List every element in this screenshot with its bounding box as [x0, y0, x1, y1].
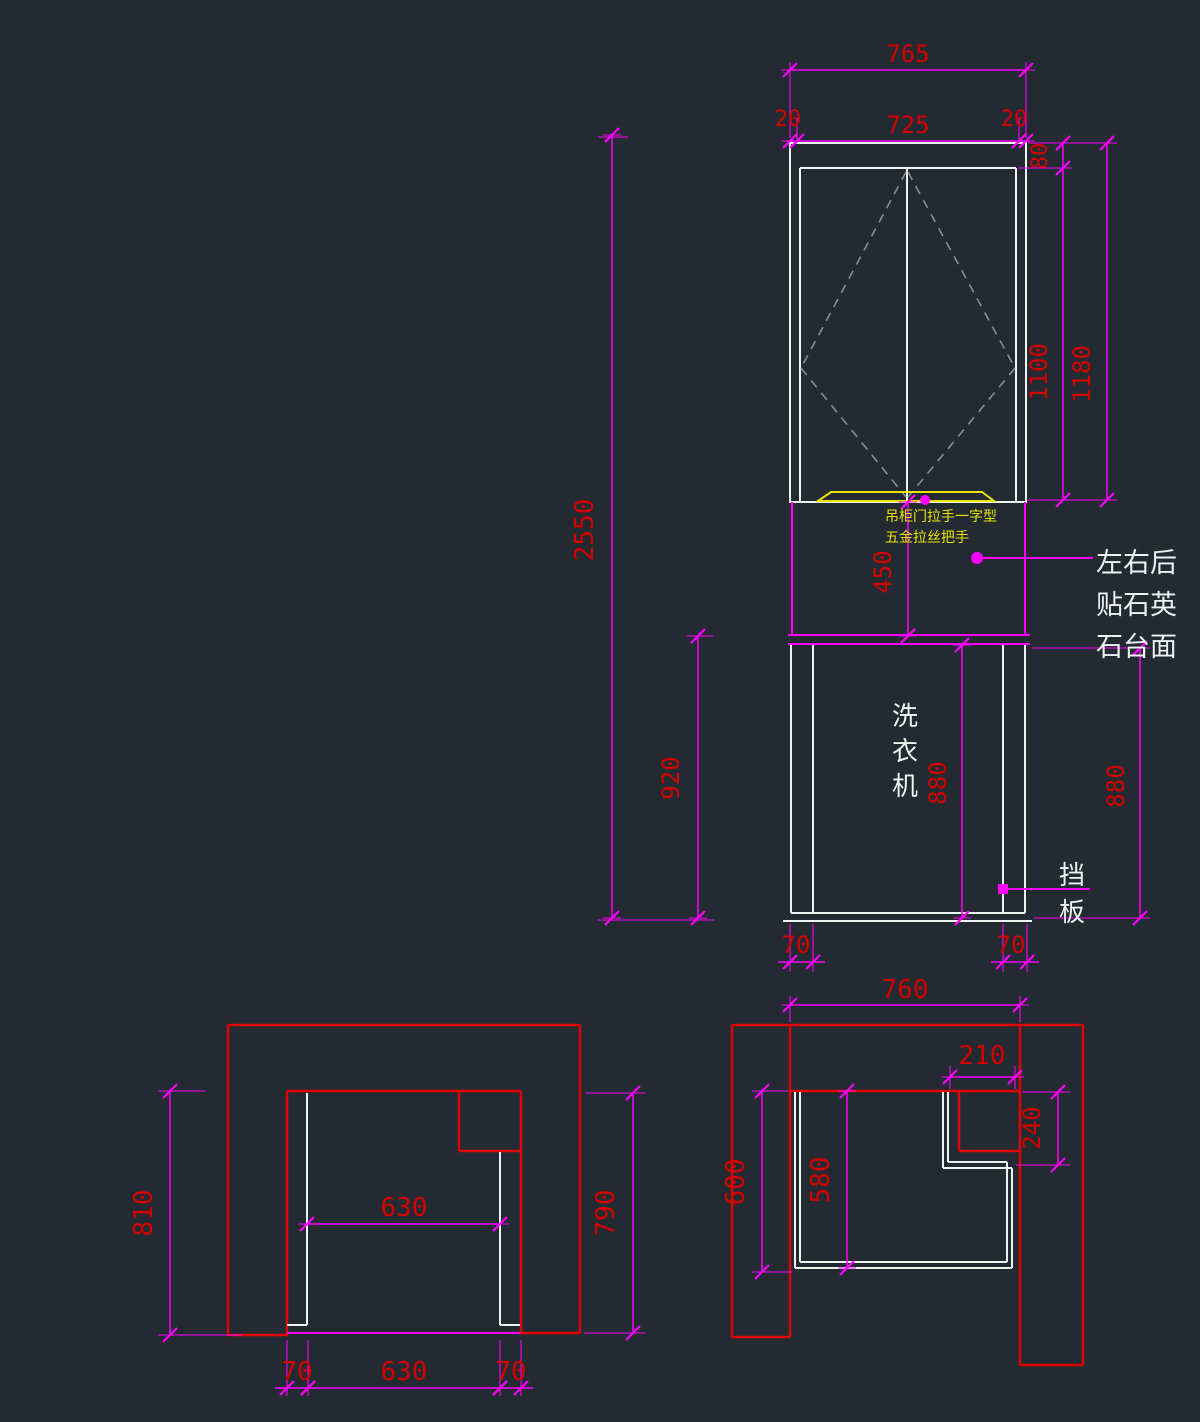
dim-splash-height: 450: [869, 550, 897, 593]
dim-upper-height: 1180: [1068, 345, 1096, 403]
counter-note-line1: 左右后: [1096, 548, 1177, 578]
cad-viewport[interactable]: 765 20 725 20 80 1100 1180 2550 920 450 …: [0, 0, 1200, 1422]
dim-plan-right-depth-inner: 580: [806, 1157, 836, 1204]
washing-machine-label-1: 洗: [892, 701, 918, 731]
dim-plan-left-foot-right: 70: [495, 1357, 526, 1387]
dim-base-height: 920: [657, 756, 685, 799]
leader-dot: [920, 495, 930, 505]
dim-foot-left: 70: [782, 931, 811, 959]
dim-door-height: 1100: [1025, 343, 1053, 401]
handle-note-line2: 五金拉丝把手: [885, 529, 969, 545]
baffle-label-1: 挡: [1059, 860, 1085, 890]
leader-dot: [971, 552, 983, 564]
dim-top-rail: 80: [1028, 143, 1053, 170]
dim-niche-height: 880: [924, 761, 952, 804]
dim-plan-left-height-right: 790: [591, 1190, 621, 1237]
dim-plan-left-inner-width: 630: [381, 1193, 428, 1223]
dim-foot-right: 70: [997, 931, 1026, 959]
dim-side-right: 20: [1001, 107, 1028, 132]
dim-overall-width: 765: [886, 40, 929, 68]
dim-plan-left-bottom-width: 630: [381, 1357, 428, 1387]
baffle-label-2: 板: [1059, 897, 1085, 927]
dim-plan-right-notch-depth: 240: [1018, 1106, 1046, 1149]
dim-plan-left-foot-left: 70: [281, 1357, 312, 1387]
dim-plan-left-height-left: 810: [129, 1190, 159, 1237]
washing-machine-label-3: 机: [892, 771, 918, 801]
dim-inner-width: 725: [886, 111, 929, 139]
cad-drawing[interactable]: 765 20 725 20 80 1100 1180 2550 920 450 …: [0, 0, 1200, 1422]
handle-note-line1: 吊柜门拉手一字型: [885, 508, 997, 524]
counter-note-line2: 贴石英: [1096, 590, 1177, 620]
dim-side-left: 20: [775, 107, 802, 132]
dim-plan-right-inner-width: 760: [882, 975, 929, 1005]
dim-plan-right-depth-left: 600: [721, 1159, 751, 1206]
dim-total-height: 2550: [570, 499, 600, 562]
washing-machine-label-2: 衣: [892, 736, 918, 766]
dim-right-height: 880: [1102, 764, 1130, 807]
counter-note-line3: 石台面: [1096, 632, 1177, 662]
dim-plan-right-notch-width: 210: [959, 1041, 1006, 1071]
